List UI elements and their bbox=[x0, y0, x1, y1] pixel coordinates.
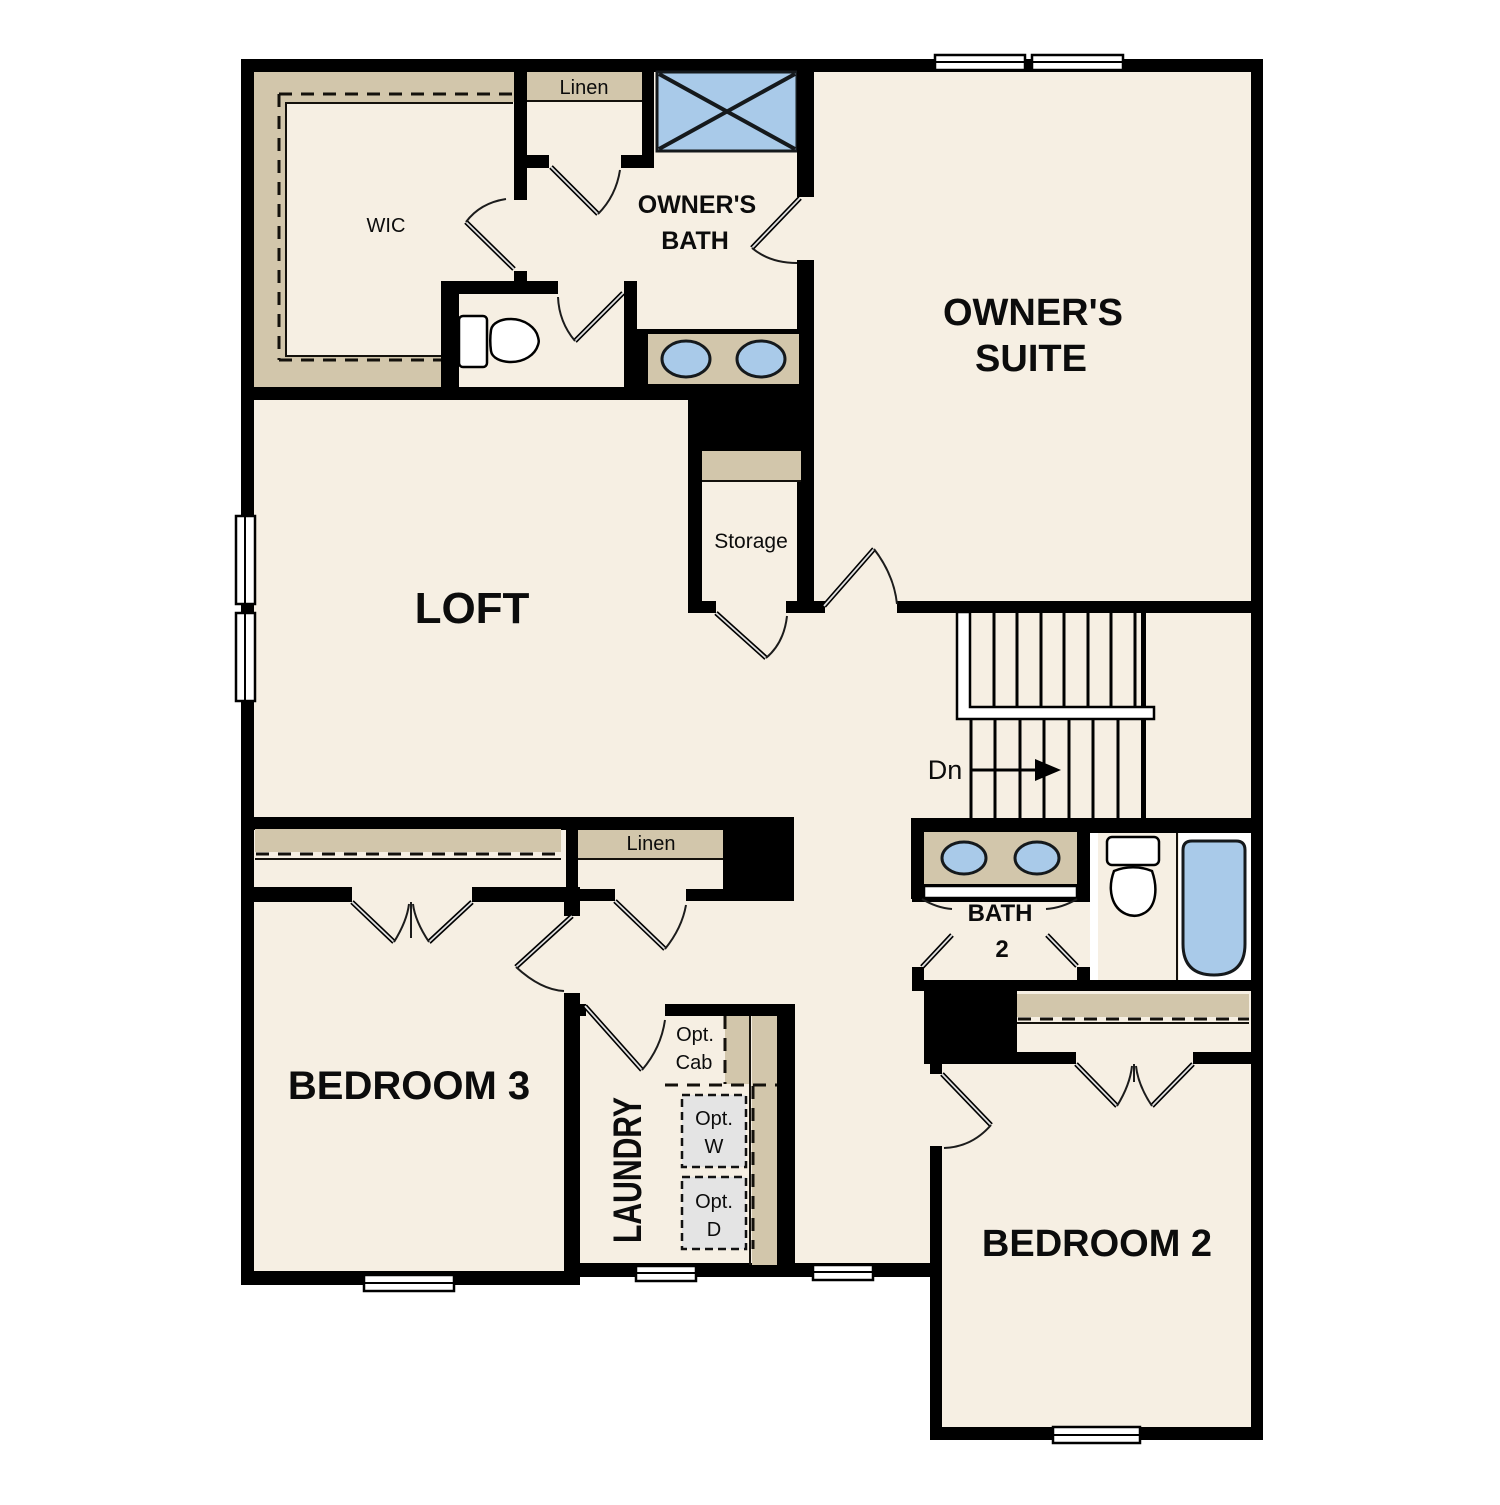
svg-text:D: D bbox=[707, 1219, 721, 1241]
svg-text:Opt.: Opt. bbox=[676, 1024, 714, 1046]
svg-text:2: 2 bbox=[995, 936, 1008, 963]
svg-text:BEDROOM 3: BEDROOM 3 bbox=[288, 1064, 530, 1108]
svg-text:W: W bbox=[705, 1136, 724, 1158]
svg-text:Linen: Linen bbox=[560, 77, 609, 99]
svg-text:Opt.: Opt. bbox=[695, 1191, 733, 1213]
svg-text:Cab: Cab bbox=[676, 1052, 713, 1074]
svg-text:Storage: Storage bbox=[714, 530, 788, 553]
svg-text:BATH: BATH bbox=[968, 900, 1033, 927]
svg-text:BEDROOM 2: BEDROOM 2 bbox=[982, 1223, 1212, 1265]
svg-text:WIC: WIC bbox=[367, 215, 406, 237]
svg-text:Linen: Linen bbox=[627, 833, 676, 855]
svg-text:Opt.: Opt. bbox=[695, 1108, 733, 1130]
svg-text:OWNER'S: OWNER'S bbox=[943, 292, 1123, 334]
svg-text:LOFT: LOFT bbox=[415, 584, 530, 633]
svg-text:BATH: BATH bbox=[661, 227, 729, 255]
svg-text:Dn: Dn bbox=[928, 755, 963, 785]
svg-text:SUITE: SUITE bbox=[975, 338, 1087, 380]
svg-text:LAUNDRY: LAUNDRY bbox=[606, 1097, 650, 1243]
svg-text:OWNER'S: OWNER'S bbox=[638, 191, 756, 219]
